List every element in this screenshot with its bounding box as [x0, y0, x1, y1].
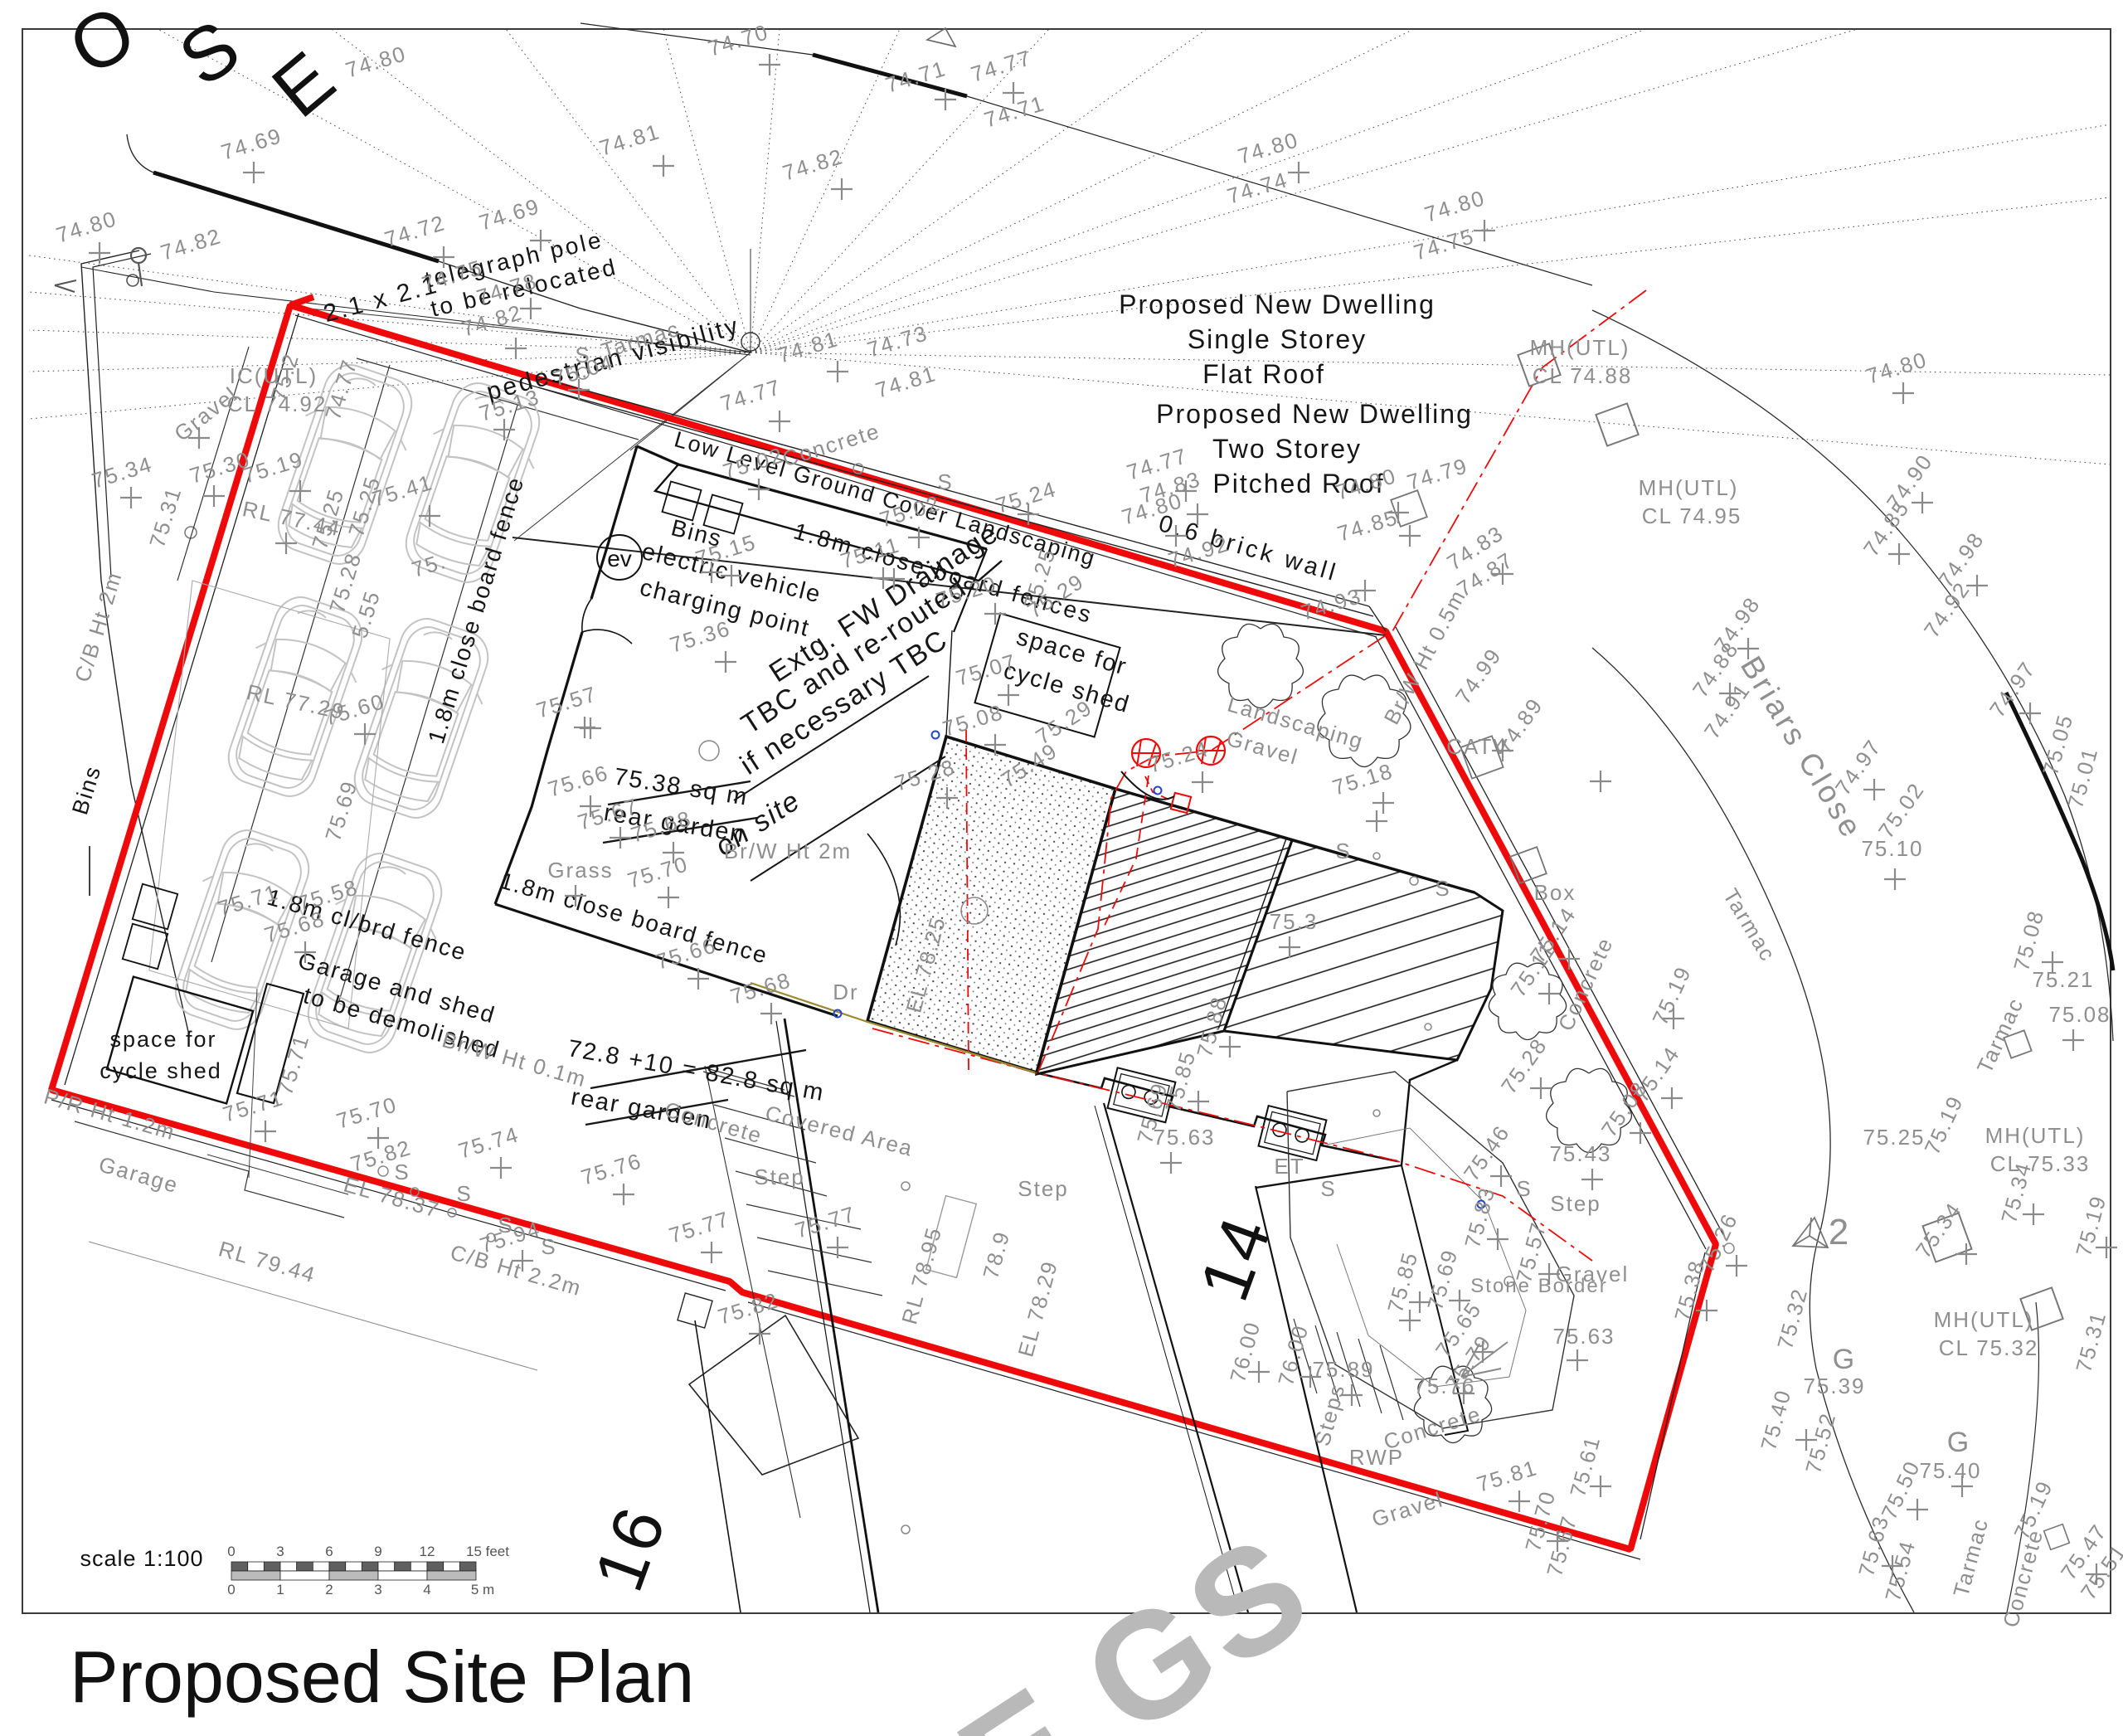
- svg-text:Grass: Grass: [547, 858, 613, 883]
- svg-text:CL 75.32: CL 75.32: [1939, 1335, 2039, 1360]
- svg-text:2: 2: [325, 1582, 333, 1597]
- svg-text:S: S: [1516, 1176, 1532, 1201]
- svg-text:75.40: 75.40: [1919, 1458, 1981, 1483]
- svg-text:CATV: CATV: [1446, 734, 1508, 759]
- svg-text:CL 74.95: CL 74.95: [1642, 503, 1742, 528]
- svg-text:75.63: 75.63: [1153, 1125, 1215, 1150]
- svg-text:S: S: [541, 1234, 556, 1259]
- svg-text:75.3: 75.3: [1270, 909, 1319, 934]
- svg-text:Proposed New Dwelling: Proposed New Dwelling: [1119, 289, 1436, 319]
- svg-text:12: 12: [420, 1544, 435, 1559]
- svg-text:75.10: 75.10: [1861, 836, 1923, 861]
- svg-text:15 feet: 15 feet: [466, 1544, 509, 1559]
- svg-text:Proposed New Dwelling: Proposed New Dwelling: [1156, 399, 1473, 429]
- svg-text:ET: ET: [1274, 1154, 1304, 1179]
- svg-text:S: S: [498, 1213, 513, 1238]
- svg-text:MH(UTL): MH(UTL): [1639, 475, 1739, 500]
- svg-text:6: 6: [325, 1544, 333, 1559]
- svg-text:Proposed Site Plan: Proposed Site Plan: [70, 1636, 694, 1718]
- svg-text:S: S: [575, 343, 590, 367]
- svg-text:Stone Border: Stone Border: [1470, 1275, 1607, 1297]
- svg-text:MH(UTL): MH(UTL): [1934, 1307, 2034, 1332]
- svg-text:75.21: 75.21: [2032, 967, 2094, 992]
- svg-text:3: 3: [276, 1544, 284, 1559]
- svg-text:Two Storey: Two Storey: [1212, 434, 1362, 464]
- svg-text:Single Storey: Single Storey: [1188, 324, 1367, 354]
- svg-text:Dr: Dr: [833, 980, 858, 1004]
- svg-text:75.76: 75.76: [1413, 1374, 1475, 1398]
- svg-text:Box: Box: [1534, 880, 1576, 905]
- svg-text:75.63: 75.63: [1552, 1324, 1615, 1349]
- svg-text:cycle shed: cycle shed: [100, 1058, 222, 1083]
- svg-text:MH(UTL): MH(UTL): [1530, 335, 1630, 360]
- svg-text:ev: ev: [607, 546, 632, 571]
- svg-text:G: G: [1947, 1427, 1970, 1458]
- svg-text:CL 74.92: CL 74.92: [227, 391, 328, 416]
- svg-text:space for: space for: [109, 1027, 216, 1052]
- svg-text:S: S: [394, 1160, 410, 1184]
- svg-text:1: 1: [276, 1582, 284, 1597]
- svg-text:MH(UTL): MH(UTL): [1985, 1123, 2086, 1148]
- svg-text:9: 9: [374, 1544, 381, 1559]
- svg-text:75.25: 75.25: [1863, 1125, 1925, 1150]
- svg-text:0: 0: [227, 1582, 235, 1597]
- svg-text:CL 74.88: CL 74.88: [1533, 363, 1633, 388]
- svg-text:75.08: 75.08: [2048, 1002, 2111, 1027]
- svg-text:Br/W Ht 2m: Br/W Ht 2m: [724, 839, 852, 863]
- svg-text:2: 2: [1829, 1212, 1849, 1252]
- svg-text:CL 75.33: CL 75.33: [1990, 1151, 2091, 1176]
- svg-text:S: S: [1335, 839, 1351, 863]
- svg-text:Step: Step: [1018, 1176, 1069, 1201]
- svg-text:Step: Step: [1550, 1191, 1601, 1216]
- svg-text:G: G: [1833, 1344, 1856, 1375]
- svg-text:S: S: [1320, 1176, 1336, 1201]
- svg-text:S: S: [456, 1181, 472, 1206]
- svg-text:5 m: 5 m: [471, 1582, 494, 1597]
- svg-text:0: 0: [227, 1544, 235, 1559]
- svg-text:S: S: [937, 469, 953, 494]
- svg-text:Step: Step: [754, 1165, 805, 1189]
- svg-text:Flat Roof: Flat Roof: [1202, 359, 1325, 389]
- svg-text:4: 4: [423, 1582, 430, 1597]
- svg-text:75.39: 75.39: [1803, 1374, 1865, 1398]
- svg-text:IC(UTL): IC(UTL): [230, 363, 318, 388]
- svg-text:S: S: [1435, 876, 1450, 901]
- svg-text:3: 3: [374, 1582, 381, 1597]
- svg-text:75.89: 75.89: [1312, 1357, 1374, 1382]
- svg-text:scale 1:100: scale 1:100: [80, 1546, 203, 1571]
- svg-text:RWP: RWP: [1349, 1445, 1404, 1470]
- svg-text:75.43: 75.43: [1549, 1141, 1611, 1166]
